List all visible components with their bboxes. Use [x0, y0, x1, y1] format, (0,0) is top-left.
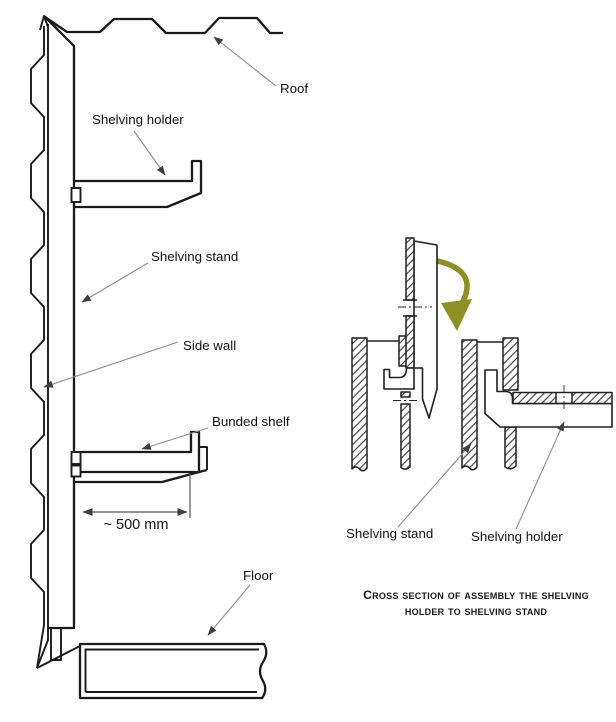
cross-section-after: [462, 338, 612, 470]
dimension-label: ~ 500 mm: [104, 517, 169, 533]
shelving-holder-leader-arrow: [134, 131, 165, 175]
roof-label: Roof: [280, 81, 308, 96]
floor-label: Floor: [243, 568, 274, 583]
shelving-stand-leader-arrow: [82, 263, 148, 302]
side-wall-profile: [31, 16, 48, 668]
cross-section-caption-line1: Cross section of assembly the shelving: [363, 588, 589, 602]
left-view-labels: Roof Shelving holder Shelving stand Side…: [44, 37, 308, 635]
floor-slab: [37, 644, 266, 698]
side-wall-leader-arrow: [44, 342, 178, 387]
shelving-holder-label: Shelving holder: [92, 112, 184, 127]
roof-leader-arrow: [214, 37, 276, 86]
shelving-stand-label: Shelving stand: [151, 249, 238, 264]
side-wall-label: Side wall: [183, 338, 236, 353]
cs-holder-leader-arrow: [516, 422, 564, 529]
diagram-canvas: ~ 500 mm Roof Shelving holder Shelving s…: [0, 0, 616, 722]
roof-profile: [45, 17, 283, 33]
holder-hook-section: [384, 368, 414, 389]
cross-section-before: [352, 238, 437, 471]
holder-body-section: [414, 241, 437, 418]
shelving-holder-bracket: [72, 161, 202, 207]
shelving-assembly-diagram: ~ 500 mm Roof Shelving holder Shelving s…: [0, 0, 616, 722]
cs-shelving-stand-label: Shelving stand: [346, 526, 433, 541]
cross-section-caption-line2: holder to shelving stand: [405, 604, 547, 618]
bunded-shelf-assembly: [72, 432, 208, 482]
bunded-shelf-label: Bunded shelf: [212, 414, 290, 429]
floor-leader-arrow: [208, 585, 250, 635]
cs-shelving-holder-label: Shelving holder: [471, 529, 563, 544]
assembly-arrowhead-icon: [441, 299, 472, 331]
